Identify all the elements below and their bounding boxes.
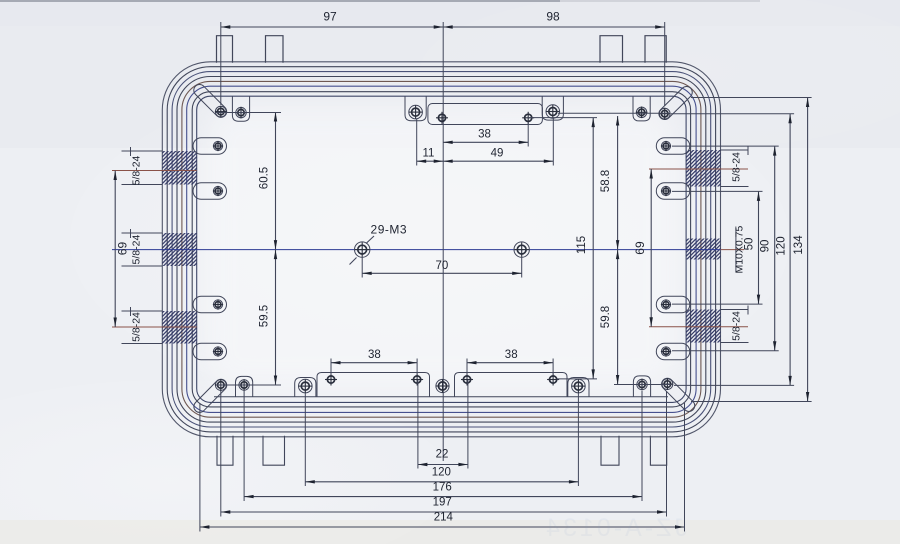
svg-text:5/8-24: 5/8-24 [731, 311, 743, 341]
svg-text:11: 11 [423, 148, 435, 160]
svg-text:120: 120 [432, 467, 451, 479]
svg-text:5/8-24: 5/8-24 [131, 235, 143, 265]
svg-text:97: 97 [323, 10, 337, 24]
svg-text:69: 69 [633, 241, 647, 255]
svg-text:214: 214 [434, 512, 454, 524]
svg-text:134: 134 [793, 235, 805, 255]
svg-text:98: 98 [546, 10, 560, 24]
svg-text:5/8-24: 5/8-24 [131, 312, 143, 342]
svg-text:176: 176 [433, 482, 452, 494]
svg-text:90: 90 [760, 240, 772, 253]
svg-text:70: 70 [436, 260, 449, 272]
svg-text:58.8: 58.8 [600, 170, 612, 192]
svg-text:38: 38 [368, 349, 381, 361]
svg-text:59.5: 59.5 [259, 305, 271, 327]
svg-text:115: 115 [576, 236, 588, 254]
svg-text:69: 69 [116, 242, 130, 256]
svg-text:49: 49 [491, 148, 504, 160]
svg-text:59.8: 59.8 [600, 306, 612, 328]
svg-text:38: 38 [478, 129, 491, 141]
svg-text:JZ-A-0134: JZ-A-0134 [543, 514, 687, 542]
svg-text:38: 38 [505, 349, 518, 361]
svg-text:60.5: 60.5 [259, 167, 271, 189]
svg-text:29-M3: 29-M3 [371, 223, 408, 237]
svg-text:22: 22 [436, 449, 449, 461]
svg-text:197: 197 [433, 497, 452, 509]
svg-text:5/8-24: 5/8-24 [131, 155, 143, 185]
svg-text:M10X0.75: M10X0.75 [734, 226, 746, 274]
svg-text:5/8-24: 5/8-24 [731, 152, 743, 182]
svg-text:120: 120 [776, 236, 788, 255]
